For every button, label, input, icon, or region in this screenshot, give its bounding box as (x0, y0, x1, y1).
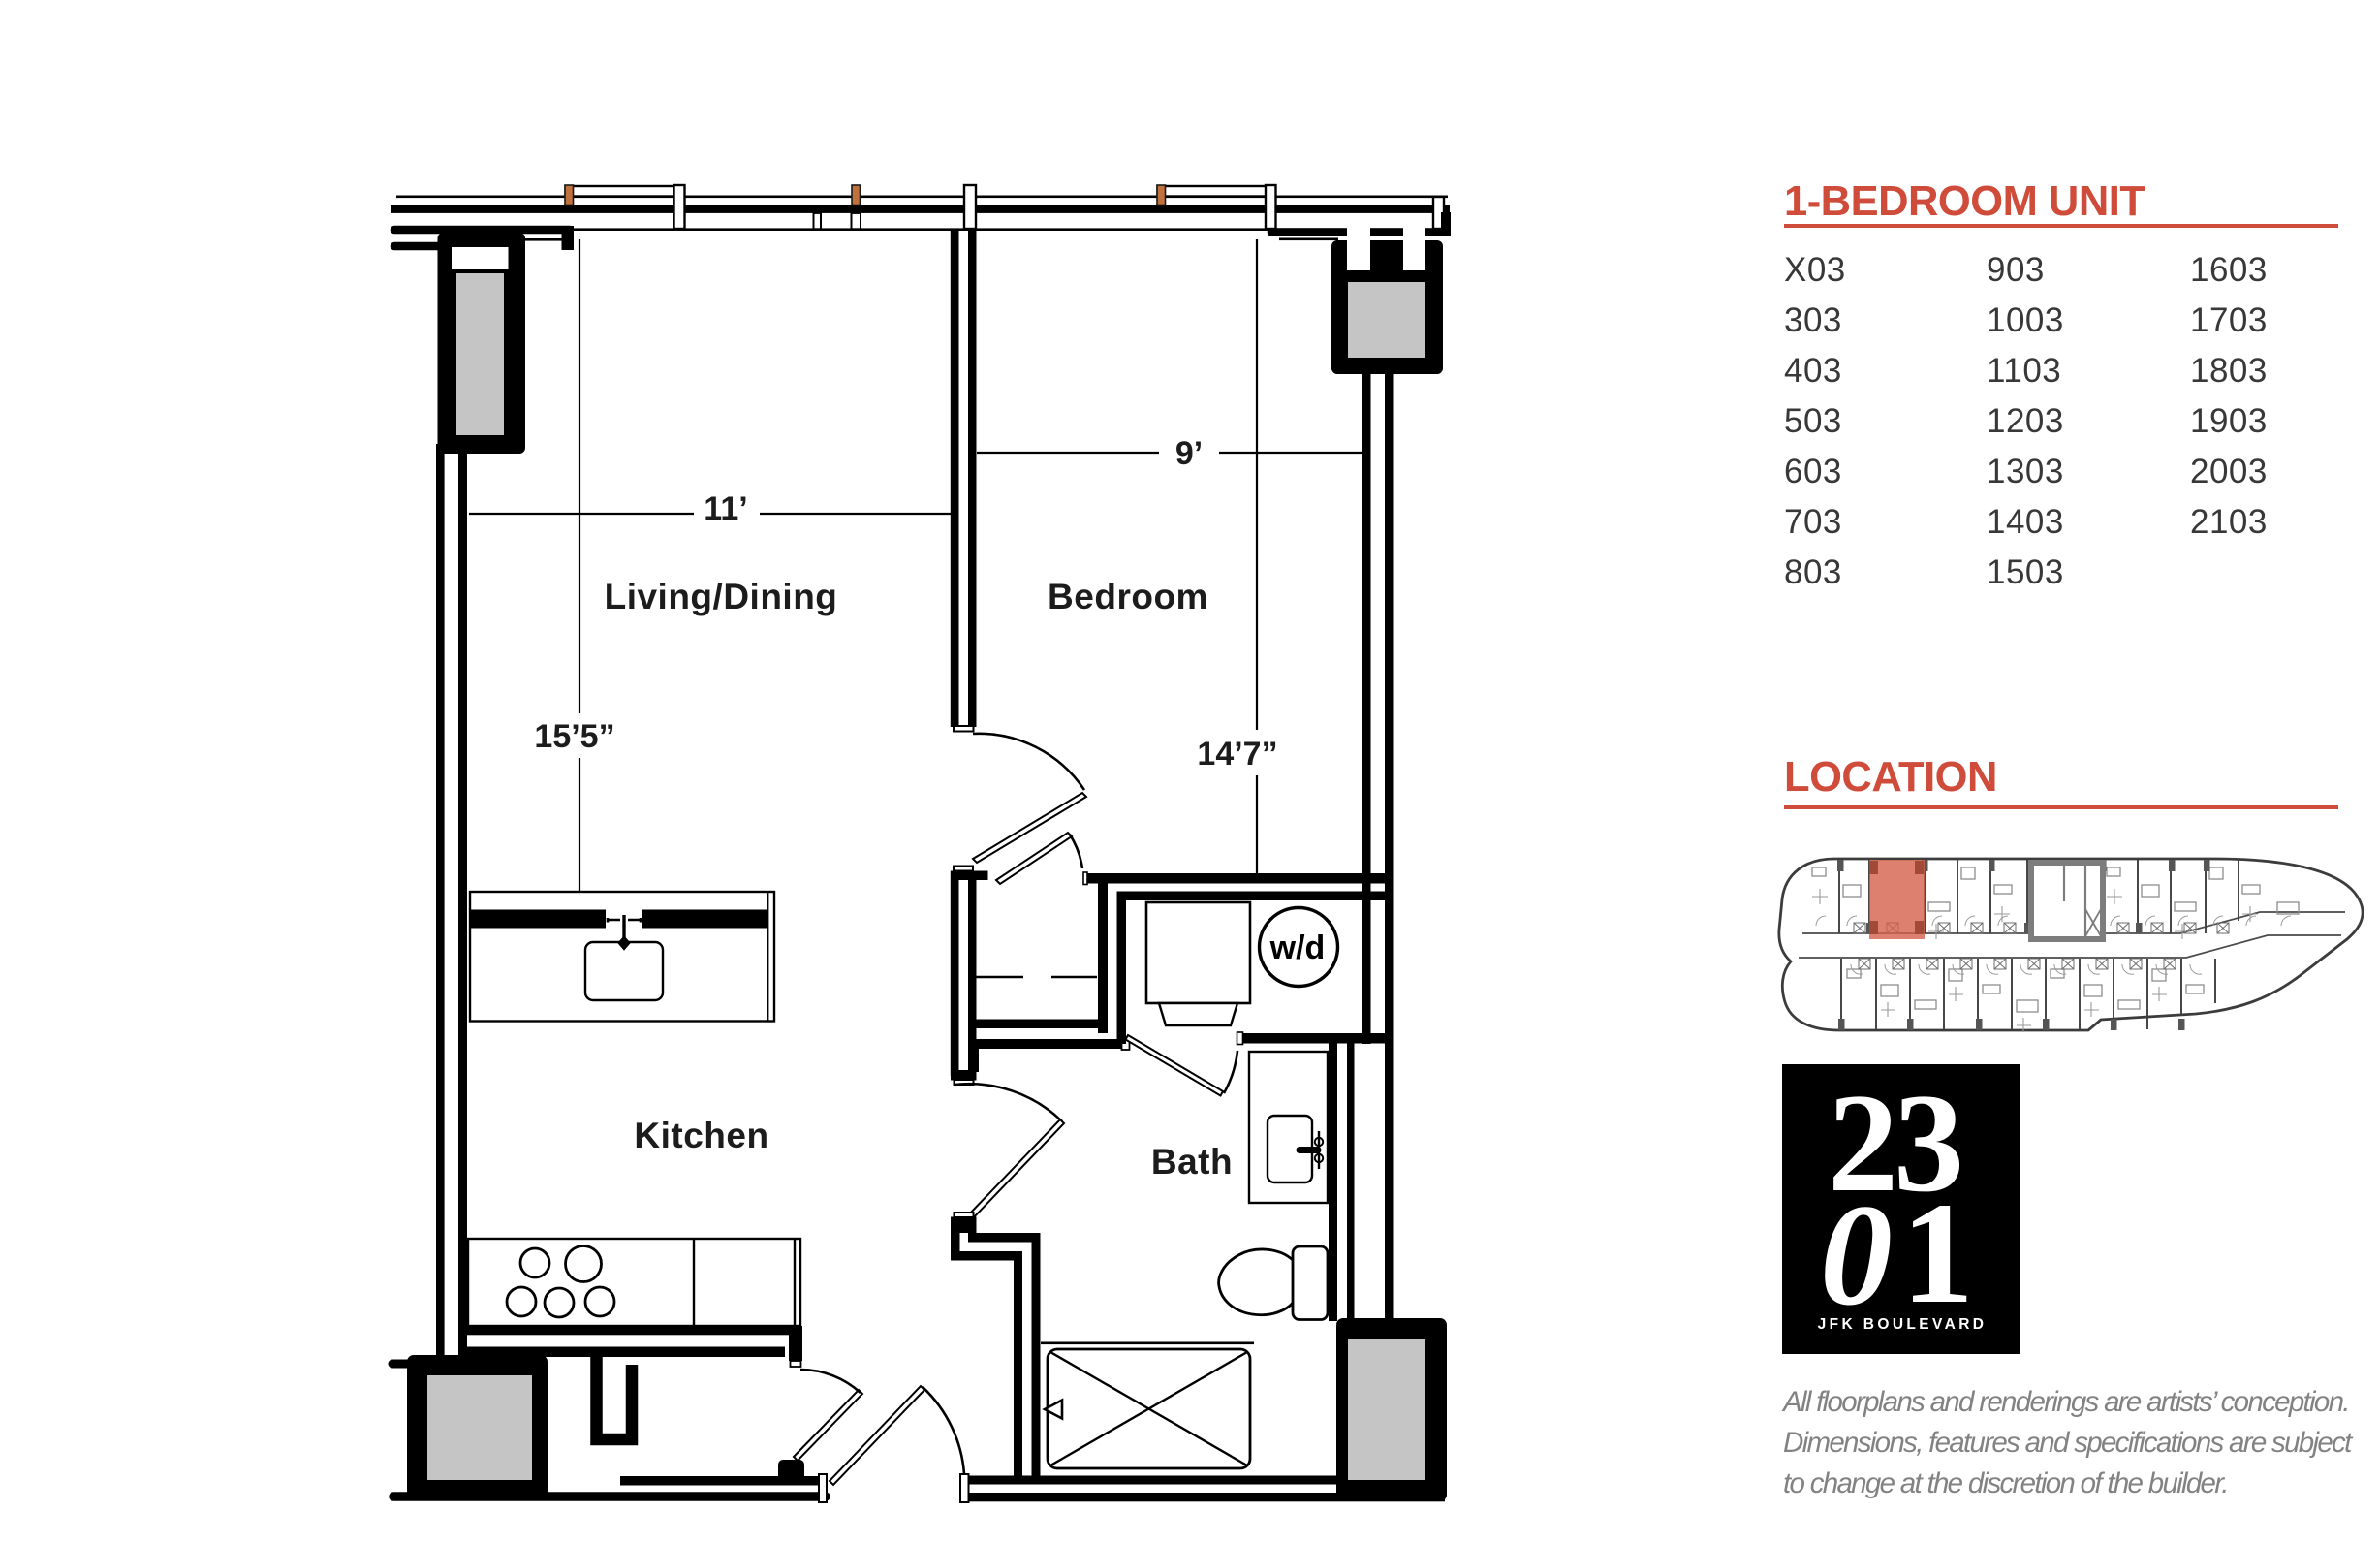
svg-text:11’: 11’ (704, 490, 747, 527)
svg-text:0: 0 (1820, 1175, 1893, 1336)
svg-text:1303: 1303 (1987, 453, 2064, 490)
svg-text:303: 303 (1784, 301, 1842, 339)
svg-text:15’5”: 15’5” (534, 718, 614, 755)
svg-text:1603: 1603 (2190, 251, 2268, 289)
svg-text:All floorplans and renderings: All floorplans and renderings are artist… (1781, 1386, 2349, 1418)
svg-text:403: 403 (1784, 352, 1842, 390)
svg-text:9’: 9’ (1175, 435, 1203, 472)
svg-text:603: 603 (1784, 453, 1842, 490)
svg-text:1: 1 (1901, 1173, 1974, 1334)
svg-text:Kitchen: Kitchen (634, 1116, 768, 1155)
svg-text:14’7”: 14’7” (1197, 736, 1277, 772)
svg-text:w/d: w/d (1269, 930, 1326, 966)
svg-text:1203: 1203 (1987, 402, 2064, 440)
svg-text:1703: 1703 (2190, 301, 2268, 339)
svg-text:1103: 1103 (1987, 352, 2061, 390)
svg-text:803: 803 (1784, 553, 1842, 591)
svg-text:2103: 2103 (2190, 503, 2268, 541)
svg-text:to change at the discretion of: to change at the discretion of the build… (1783, 1467, 2228, 1499)
svg-text:1503: 1503 (1987, 553, 2064, 591)
svg-text:LOCATION: LOCATION (1784, 754, 1997, 801)
svg-text:703: 703 (1784, 503, 1842, 541)
svg-text:Dimensions, features and speci: Dimensions, features and specifications … (1783, 1427, 2354, 1459)
svg-text:1003: 1003 (1987, 301, 2064, 339)
svg-text:1803: 1803 (2190, 352, 2268, 390)
svg-text:Bath: Bath (1151, 1142, 1233, 1182)
svg-text:Bedroom: Bedroom (1048, 577, 1208, 616)
svg-text:1903: 1903 (2190, 402, 2268, 440)
svg-text:1403: 1403 (1987, 503, 2064, 541)
svg-text:1-BEDROOM UNIT: 1-BEDROOM UNIT (1784, 178, 2145, 225)
svg-text:2003: 2003 (2190, 453, 2268, 490)
svg-text:903: 903 (1987, 251, 2045, 289)
svg-text:Living/Dining: Living/Dining (605, 577, 838, 616)
svg-text:503: 503 (1784, 402, 1842, 440)
svg-text:JFK BOULEVARD: JFK BOULEVARD (1818, 1316, 1988, 1333)
svg-text:X03: X03 (1784, 251, 1846, 289)
